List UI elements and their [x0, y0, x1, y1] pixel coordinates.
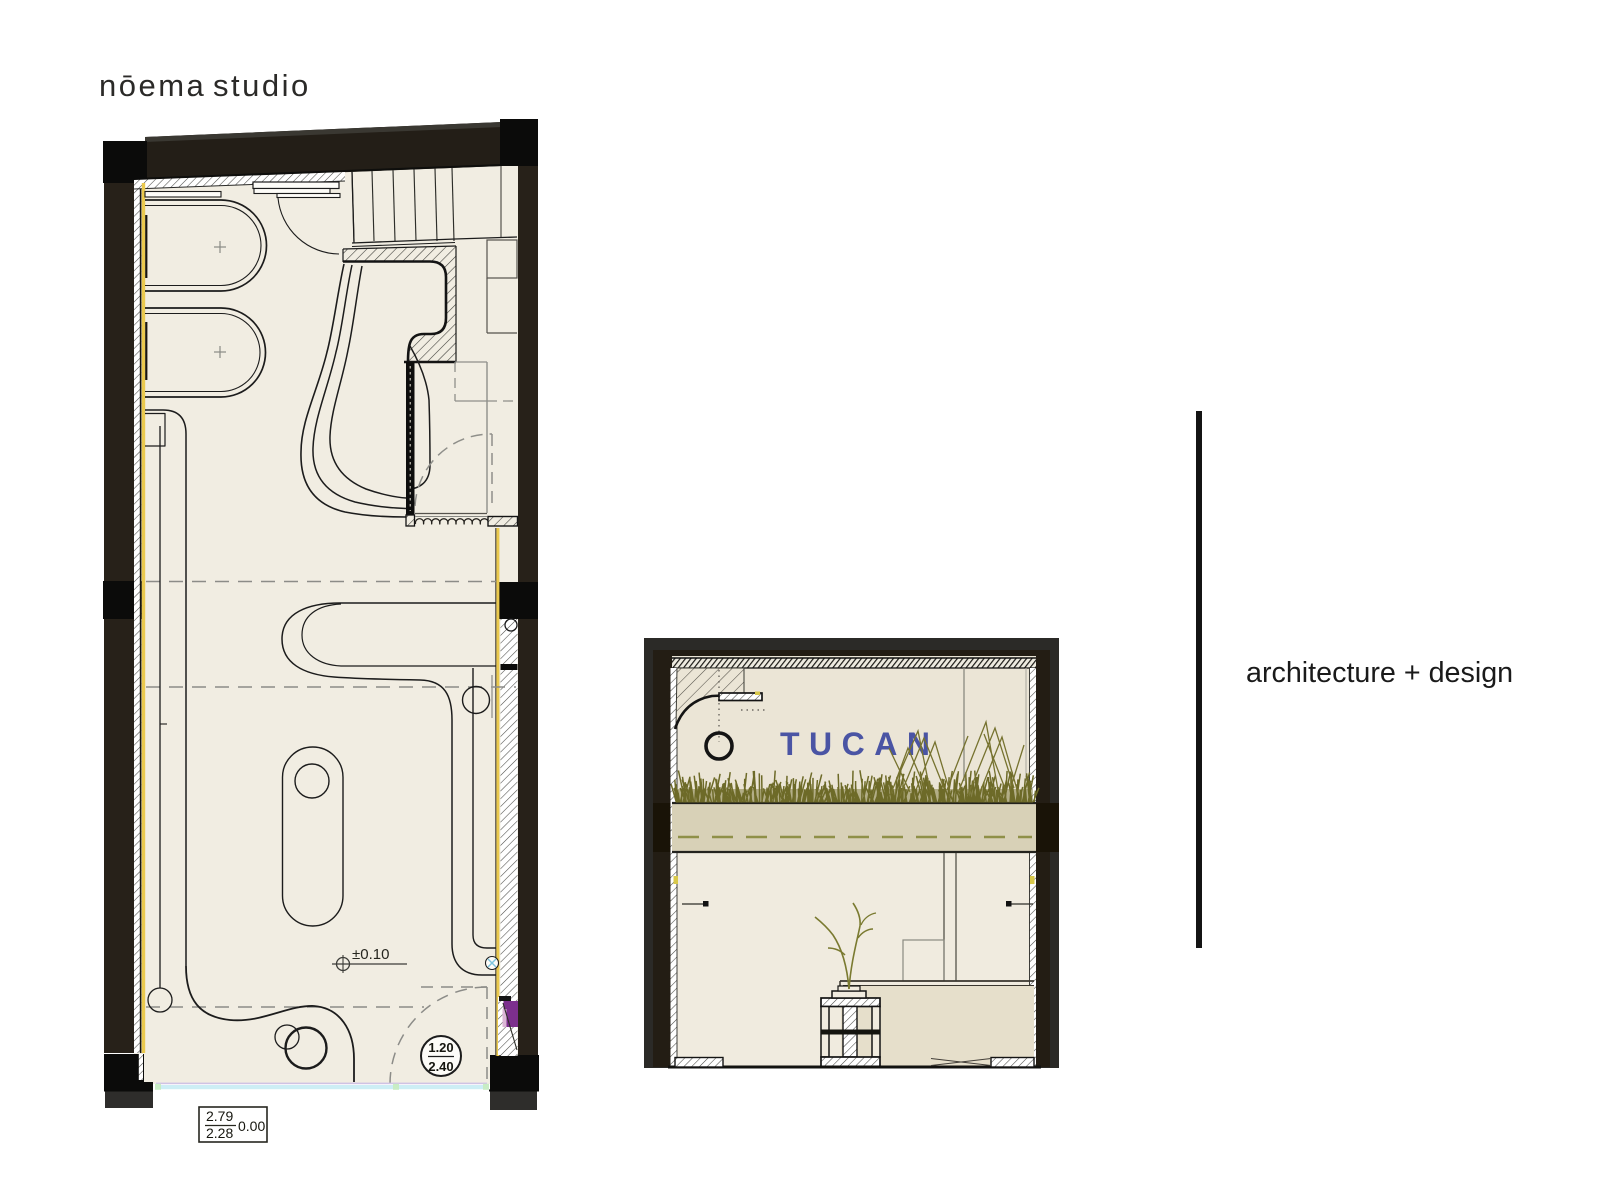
svg-text:nōema: nōema: [99, 68, 206, 103]
svg-text:2.40: 2.40: [428, 1059, 453, 1074]
svg-text:TUCAN: TUCAN: [780, 726, 939, 762]
svg-text:2.79: 2.79: [206, 1108, 233, 1124]
svg-text:studio: studio: [213, 68, 311, 103]
svg-text:0.00: 0.00: [238, 1118, 265, 1134]
svg-text:2.28: 2.28: [206, 1125, 233, 1141]
svg-text:architecture + design: architecture + design: [1246, 657, 1513, 689]
svg-text:1.20: 1.20: [428, 1040, 453, 1055]
svg-text:±0.10: ±0.10: [352, 946, 389, 963]
